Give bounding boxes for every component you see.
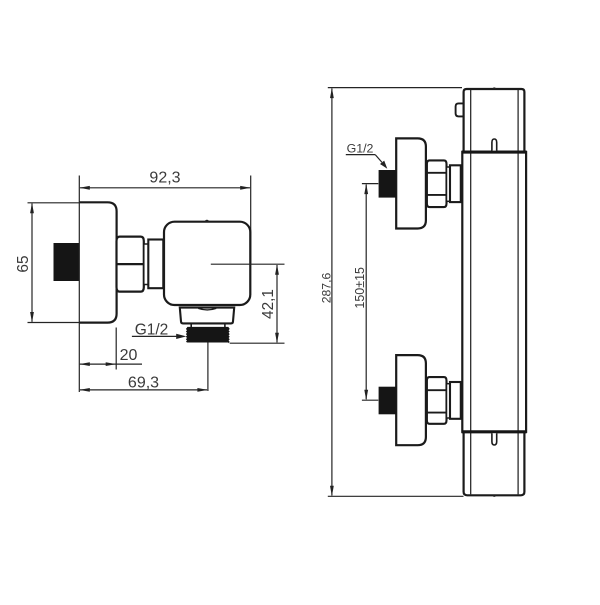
svg-text:69,3: 69,3 xyxy=(128,375,159,392)
svg-text:65: 65 xyxy=(15,255,32,272)
svg-text:287,6: 287,6 xyxy=(319,273,333,304)
svg-text:92,3: 92,3 xyxy=(149,170,180,187)
svg-text:150±15: 150±15 xyxy=(353,267,367,309)
svg-text:42,1: 42,1 xyxy=(260,289,277,319)
svg-text:G1/2: G1/2 xyxy=(347,141,374,155)
svg-text:20: 20 xyxy=(120,347,138,364)
